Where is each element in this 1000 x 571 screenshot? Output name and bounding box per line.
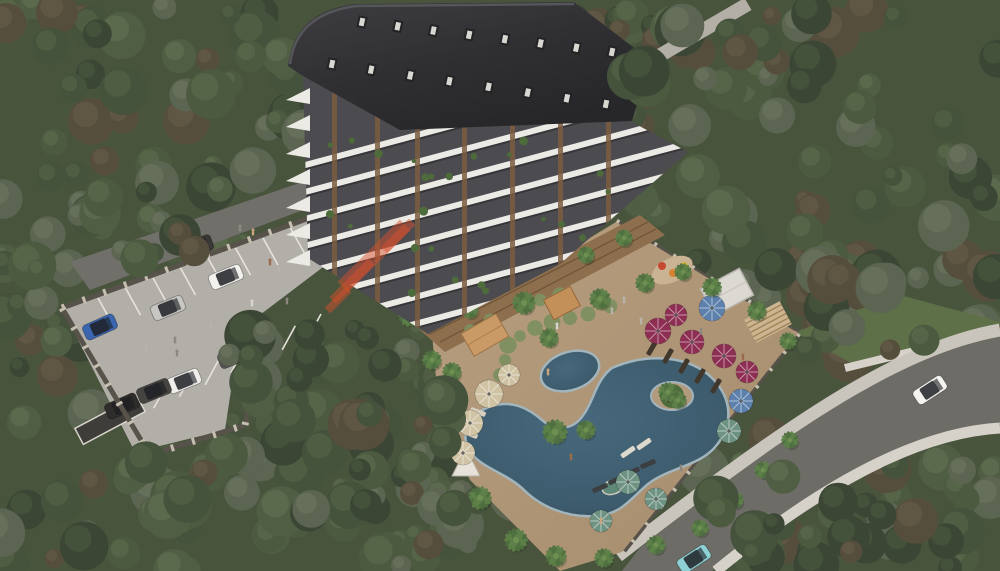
tree-highlight — [152, 213, 164, 225]
balcony-plant — [452, 277, 459, 284]
tree-canopy — [286, 366, 312, 392]
tree-highlight — [726, 37, 746, 57]
umbrella-pole — [461, 451, 464, 454]
tree-highlight — [846, 93, 865, 112]
tree-canopy — [706, 497, 736, 527]
palm-crown — [513, 537, 519, 543]
tree-canopy — [238, 345, 263, 370]
tree-canopy — [32, 28, 69, 65]
tree-canopy — [908, 325, 939, 356]
tree-canopy — [41, 325, 72, 356]
tree-highlight — [72, 393, 98, 419]
tree-highlight — [41, 358, 64, 381]
umbrella — [729, 389, 753, 413]
tree-highlight — [28, 288, 47, 307]
tree-highlight — [33, 219, 53, 239]
palm-crown — [547, 336, 552, 341]
person — [174, 337, 177, 344]
tree-highlight — [262, 490, 289, 517]
person — [600, 518, 603, 525]
person — [286, 298, 289, 305]
tree-highlight — [798, 338, 812, 352]
umbrella-pole — [468, 421, 471, 424]
palm-crown — [622, 236, 627, 241]
tree-highlight — [680, 157, 704, 181]
tree-highlight — [709, 499, 726, 516]
tree-canopy — [37, 355, 78, 396]
person-body — [556, 325, 558, 330]
tree-canopy — [235, 41, 266, 72]
tree-highlight — [12, 359, 23, 370]
tree-highlight — [359, 402, 374, 417]
tree-highlight — [800, 526, 813, 539]
tree-highlight — [268, 112, 281, 125]
tree-canopy — [766, 459, 800, 493]
tree-highlight — [735, 514, 762, 541]
tree-canopy — [196, 48, 220, 72]
palm-crown — [654, 543, 659, 548]
umbrella-pole — [654, 497, 657, 500]
tree-highlight — [798, 546, 823, 571]
tree-highlight — [364, 536, 392, 564]
tree-highlight — [861, 267, 889, 295]
tree-highlight — [138, 183, 149, 194]
tree-canopy — [41, 129, 68, 156]
tree-highlight — [801, 147, 819, 165]
tree-highlight — [30, 261, 43, 274]
tree-highlight — [229, 314, 257, 342]
tree-highlight — [822, 486, 844, 508]
tree-canopy — [414, 530, 444, 560]
tree-canopy — [693, 66, 717, 90]
tree-canopy — [84, 178, 123, 217]
tree-highlight — [401, 452, 420, 471]
person-body — [252, 231, 254, 236]
tree-highlight — [171, 223, 184, 236]
tree-canopy — [893, 498, 939, 544]
tree-canopy — [253, 320, 277, 344]
palm-crown — [788, 438, 793, 443]
tree-highlight — [266, 40, 287, 61]
person-body — [680, 467, 682, 472]
tree-highlight — [10, 408, 29, 427]
umbrella-pole — [739, 399, 742, 402]
tree-canopy — [36, 162, 65, 191]
balcony-plant — [408, 289, 416, 297]
tree-highlight — [744, 544, 757, 557]
tree-highlight — [832, 312, 852, 332]
balcony-plant — [446, 173, 453, 180]
tree-highlight — [43, 131, 58, 146]
tree-highlight — [73, 102, 99, 128]
tree-highlight — [665, 7, 689, 31]
tree-highlight — [297, 322, 314, 339]
tree-canopy — [829, 309, 866, 346]
tree-canopy — [852, 187, 889, 224]
tree-highlight — [440, 493, 460, 513]
tree-canopy — [63, 162, 88, 187]
tree-highlight — [800, 196, 819, 215]
tree-highlight — [104, 70, 131, 97]
shrub — [581, 307, 596, 322]
tree-canopy — [946, 143, 977, 174]
tree-highlight — [415, 417, 425, 427]
person-body — [700, 330, 702, 335]
tree-canopy — [368, 348, 401, 381]
balcony-plant — [348, 224, 353, 229]
tree-canopy — [798, 524, 822, 548]
tree-canopy — [10, 357, 30, 377]
balcony-plant — [558, 221, 565, 228]
person-body — [239, 227, 241, 232]
palm-crown — [666, 390, 671, 395]
palm-crown — [552, 429, 559, 436]
umbrella-pole — [656, 329, 659, 332]
person — [556, 323, 559, 330]
umbrella — [712, 344, 736, 368]
balcony-plant — [519, 137, 528, 146]
tree-highlight — [831, 519, 854, 542]
palm-crown — [602, 556, 607, 561]
balcony-plant — [328, 142, 333, 147]
umbrella-pole — [487, 392, 490, 395]
tree-highlight — [39, 164, 55, 180]
tree-highlight — [46, 550, 57, 561]
tree-highlight — [427, 383, 444, 400]
palm-crown — [430, 358, 435, 363]
tree-highlight — [351, 460, 363, 472]
tree-highlight — [372, 351, 390, 369]
tree-highlight — [934, 110, 952, 128]
tree-highlight — [222, 6, 233, 17]
render-stage — [0, 0, 1000, 571]
tree-highlight — [982, 459, 1000, 477]
tree-highlight — [909, 268, 921, 280]
palm-crown — [597, 296, 603, 302]
tree-canopy — [59, 74, 87, 102]
tree-canopy — [28, 259, 51, 282]
tree-highlight — [66, 164, 80, 178]
tree-highlight — [234, 151, 260, 177]
tree-highlight — [432, 429, 450, 447]
tree-canopy — [125, 441, 167, 483]
person-body — [251, 302, 253, 307]
palm-crown — [698, 526, 703, 531]
umbrella — [616, 470, 640, 494]
tree-canopy — [83, 19, 112, 48]
person — [611, 308, 614, 315]
tree-canopy — [759, 97, 795, 133]
tree-canopy — [619, 46, 670, 97]
tree-highlight — [111, 539, 129, 557]
tree-highlight — [10, 295, 24, 309]
tree-canopy — [787, 213, 824, 250]
tree-highlight — [417, 532, 433, 548]
balcony-plant — [412, 159, 416, 163]
tree-canopy — [207, 176, 233, 202]
tree-canopy — [762, 7, 780, 25]
tree-canopy — [763, 513, 784, 534]
balcony-plant — [326, 210, 334, 218]
tree-canopy — [224, 475, 260, 511]
tree-highlight — [718, 21, 734, 37]
balcony-plant — [428, 174, 434, 180]
balcony-plant — [478, 281, 486, 289]
tree-highlight — [210, 178, 224, 192]
person — [251, 300, 254, 307]
umbrella — [665, 304, 687, 326]
person — [252, 229, 255, 236]
umbrella — [699, 295, 725, 321]
tree-canopy — [702, 186, 751, 235]
person — [176, 350, 179, 357]
tree-canopy — [7, 405, 41, 439]
tree-highlight — [696, 68, 709, 81]
tree-highlight — [82, 472, 98, 488]
tree-canopy — [60, 521, 109, 570]
tree-highlight — [828, 265, 848, 285]
tree-canopy — [294, 319, 324, 349]
umbrella-pole — [727, 429, 730, 432]
aerial-render — [0, 0, 1000, 571]
tree-highlight — [842, 542, 854, 554]
tree-canopy — [41, 479, 84, 522]
tree-highlight — [347, 322, 358, 333]
person — [640, 318, 643, 325]
tree-canopy — [424, 381, 456, 413]
person — [742, 354, 745, 361]
balcony-plant — [471, 153, 477, 159]
tree-canopy — [120, 239, 158, 277]
tree-canopy — [429, 426, 462, 459]
person-body — [623, 299, 625, 304]
umbrella-pole — [722, 354, 725, 357]
tree-highlight — [36, 30, 56, 50]
person-body — [278, 269, 280, 274]
tree-canopy — [220, 4, 240, 24]
palm-crown — [786, 339, 791, 344]
tree-canopy — [136, 182, 157, 203]
tree-highlight — [886, 7, 898, 19]
tree-canopy — [856, 263, 906, 313]
tree-canopy — [230, 147, 276, 193]
tree-highlight — [65, 525, 92, 552]
tree-highlight — [228, 477, 248, 497]
tree-highlight — [86, 22, 102, 38]
tree-highlight — [129, 445, 152, 468]
tree-canopy — [948, 456, 976, 484]
tree-canopy — [742, 542, 765, 565]
balcony-plant — [421, 173, 429, 181]
tree-highlight — [353, 491, 370, 508]
balcony-plant — [597, 170, 604, 177]
umbrella-pole — [674, 313, 677, 316]
tree-highlight — [79, 62, 95, 78]
tree-highlight — [870, 503, 886, 519]
umbrella-pole — [690, 340, 693, 343]
tree-highlight — [191, 73, 218, 100]
tree-highlight — [611, 21, 623, 33]
tree-highlight — [882, 341, 893, 352]
tree-canopy — [90, 146, 119, 175]
balcony-plant — [606, 189, 611, 194]
tree-canopy — [24, 285, 58, 319]
tree-highlight — [62, 76, 77, 91]
person-body — [286, 300, 288, 305]
palm-crown — [584, 253, 589, 258]
person-body — [210, 325, 212, 330]
tree-highlight — [93, 149, 109, 165]
balcony-plant — [374, 150, 383, 159]
umbrella — [645, 488, 667, 510]
person-body — [176, 352, 178, 357]
tree-canopy — [867, 500, 896, 529]
palm-crown — [477, 495, 483, 501]
palm-crown — [450, 370, 455, 375]
palm-crown — [643, 281, 648, 286]
tree-highlight — [973, 186, 988, 201]
tree-highlight — [769, 462, 788, 481]
tree-canopy — [79, 469, 108, 498]
person — [547, 369, 550, 376]
tree-highlight — [949, 146, 966, 163]
tree-canopy — [668, 104, 711, 147]
tree-highlight — [790, 71, 809, 90]
tree-highlight — [765, 515, 777, 527]
palm-crown — [553, 553, 559, 559]
tree-canopy — [918, 200, 969, 251]
tree-canopy — [398, 450, 432, 484]
palm-crown — [710, 285, 715, 290]
balcony-plant — [411, 244, 419, 252]
tree-highlight — [358, 328, 371, 341]
person-body — [640, 320, 642, 325]
person — [700, 328, 703, 335]
tree-canopy — [907, 267, 929, 289]
palm-crown — [521, 300, 527, 306]
umbrella-pole — [710, 306, 713, 309]
tree-highlight — [790, 216, 810, 236]
person-body — [269, 261, 271, 266]
tree-highlight — [165, 41, 184, 60]
umbrella-pole — [745, 370, 748, 373]
tree-canopy — [162, 39, 196, 73]
umbrella-pole — [626, 480, 629, 483]
tree-highlight — [45, 482, 69, 506]
tree-highlight — [912, 327, 929, 344]
tree-canopy — [436, 490, 472, 526]
tree-highlight — [763, 100, 783, 120]
tree-highlight — [941, 558, 954, 571]
tree-canopy — [356, 327, 379, 350]
tree-highlight — [707, 189, 734, 216]
tree-canopy — [99, 67, 147, 115]
balcony-plant — [349, 138, 355, 144]
tree-canopy — [825, 262, 862, 299]
balcony-plant — [541, 217, 545, 221]
tree-canopy — [754, 248, 797, 291]
tree-canopy — [661, 4, 705, 48]
tree-canopy — [179, 236, 210, 267]
playground-equipment — [658, 262, 666, 270]
tree-highlight — [951, 459, 966, 474]
tree-canopy — [722, 35, 758, 71]
tree-canopy — [798, 145, 831, 178]
shrub — [514, 330, 526, 342]
tree-highlight — [393, 557, 404, 568]
tree-highlight — [397, 340, 411, 354]
tree-highlight — [241, 346, 255, 360]
tree-highlight — [256, 322, 269, 335]
tree-canopy — [292, 490, 330, 528]
tree-highlight — [856, 189, 876, 209]
tree-highlight — [856, 494, 870, 508]
tree-canopy — [272, 399, 316, 443]
tree-highlight — [11, 493, 33, 515]
tree-canopy — [164, 475, 212, 523]
person — [680, 465, 683, 472]
tree-highlight — [88, 181, 110, 203]
person — [145, 344, 148, 351]
tree-highlight — [885, 168, 896, 179]
tree-highlight — [923, 448, 948, 473]
tree-highlight — [276, 402, 300, 426]
palm-crown — [676, 398, 681, 403]
tree-highlight — [182, 238, 199, 255]
tree-highlight — [209, 436, 233, 460]
person-body — [174, 339, 176, 344]
person — [210, 323, 213, 330]
palm-crown — [761, 468, 766, 473]
tree-canopy — [931, 107, 963, 139]
balcony-plant — [419, 207, 428, 216]
tree-highlight — [238, 43, 255, 60]
tree-canopy — [356, 400, 383, 427]
balcony-plant — [428, 246, 434, 252]
palm-crown — [681, 270, 686, 275]
tree-highlight — [402, 483, 415, 496]
person-body — [611, 310, 613, 315]
tree-canopy — [787, 68, 822, 103]
tree-canopy — [880, 340, 900, 360]
balcony-plant — [507, 152, 512, 157]
person — [623, 297, 626, 304]
tree-highlight — [44, 328, 61, 345]
tree-canopy — [795, 337, 821, 363]
person — [239, 225, 242, 232]
umbrella — [717, 419, 741, 443]
tree-highlight — [897, 501, 922, 526]
person-body — [547, 371, 549, 376]
tree-highlight — [193, 462, 208, 477]
tree-canopy — [107, 537, 140, 570]
person-body — [600, 520, 602, 525]
umbrella — [475, 380, 503, 408]
tree-highlight — [220, 345, 232, 357]
palm-crown — [755, 309, 760, 314]
umbrella — [498, 364, 520, 386]
tree-highlight — [764, 8, 774, 18]
person — [278, 267, 281, 274]
tree-highlight — [307, 433, 332, 458]
palm-crown — [584, 428, 589, 433]
tree-highlight — [296, 493, 317, 514]
tree-highlight — [758, 251, 782, 275]
tree-canopy — [883, 166, 902, 185]
umbrella-pole — [507, 373, 510, 376]
tree-canopy — [840, 540, 863, 563]
tree-canopy — [350, 489, 382, 521]
